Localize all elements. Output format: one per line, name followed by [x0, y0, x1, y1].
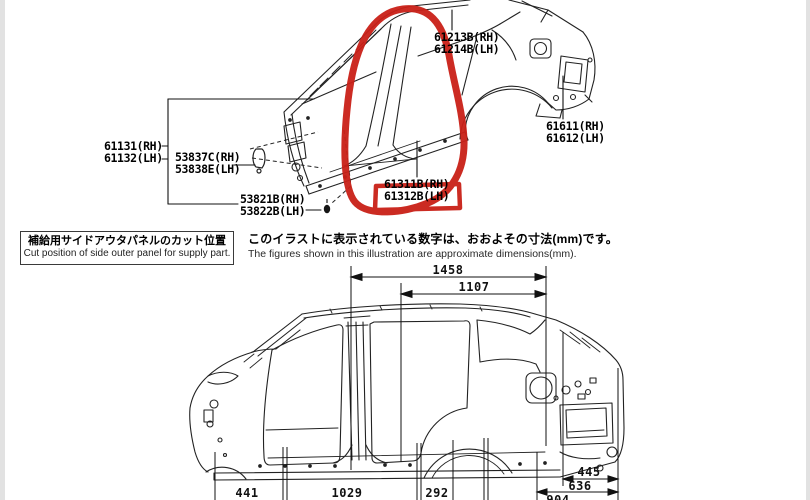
- part-number: 53838E(LH): [175, 163, 240, 175]
- dim-value-1458: 1458: [433, 264, 464, 276]
- dim-value-292: 292: [425, 487, 448, 499]
- part-number: 61214B(LH): [434, 43, 499, 55]
- dimension-note-jp: このイラストに表示されている数字は、おおよその寸法(mm)です。: [248, 232, 618, 247]
- part-label-61311b: 61311B(RH) 61312B(LH): [384, 178, 449, 202]
- part-label-53837c: 53837C(RH) 53838E(LH): [175, 151, 240, 175]
- clip-part: [253, 149, 265, 173]
- dim-value-1029: 1029: [332, 487, 363, 499]
- part-label-61611: 61611(RH) 61612(LH): [546, 120, 605, 144]
- dim-value-636: 636: [568, 480, 591, 492]
- dim-value-904: 904: [546, 494, 569, 500]
- dim-value-445: 445: [577, 466, 600, 478]
- dim-value-441: 441: [235, 487, 258, 499]
- dimension-note: このイラストに表示されている数字は、おおよその寸法(mm)です。 The fig…: [248, 232, 618, 261]
- grommet-part: [324, 199, 330, 213]
- dimension-note-en: The figures shown in this illustration a…: [248, 247, 618, 261]
- lower-body-line-art: [190, 304, 624, 480]
- cut-position-note-en: Cut position of side outer panel for sup…: [21, 248, 233, 260]
- part-number: 61612(LH): [546, 132, 605, 144]
- part-label-53821b: 53821B(RH) 53822B(LH): [240, 193, 305, 217]
- part-label-61131: 61131(RH) 61132(LH): [104, 140, 163, 164]
- dim-value-1107: 1107: [459, 281, 490, 293]
- part-number: 61132(LH): [104, 152, 163, 164]
- cut-position-note-jp: 補給用サイドアウタパネルのカット位置: [21, 234, 233, 248]
- part-number: 53822B(LH): [240, 205, 305, 217]
- part-label-61213b: 61213B(RH) 61214B(LH): [434, 31, 499, 55]
- part-number: 61312B(LH): [384, 190, 449, 202]
- cut-position-note-box: 補給用サイドアウタパネルのカット位置 Cut position of side …: [20, 231, 234, 265]
- parts-catalog-page: 61213B(RH) 61214B(LH) 61611(RH) 61612(LH…: [0, 0, 810, 500]
